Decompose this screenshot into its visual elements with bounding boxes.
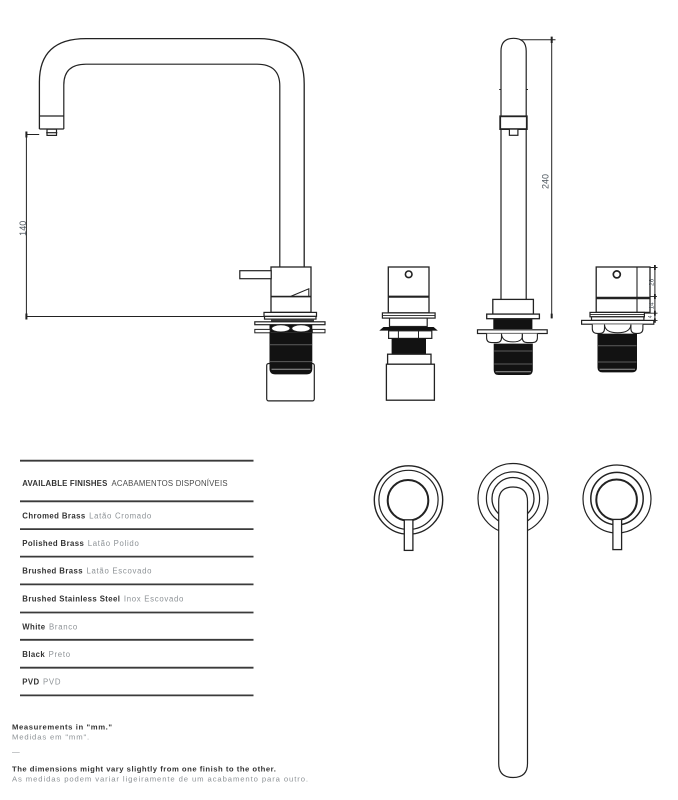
- svg-text:Measurements in "mm.": Measurements in "mm.": [12, 723, 113, 732]
- svg-text:BlackPreto: BlackPreto: [22, 650, 70, 659]
- svg-text:—: —: [12, 747, 20, 756]
- svg-text:Brushed BrassLatão Escovado: Brushed BrassLatão Escovado: [22, 567, 152, 576]
- svg-text:Polished BrassLatão Polido: Polished BrassLatão Polido: [22, 539, 139, 548]
- svg-text:Medidas em "mm".: Medidas em "mm".: [12, 733, 90, 742]
- svg-text:4: 4: [648, 315, 654, 318]
- svg-text:As medidas podem variar ligeir: As medidas podem variar ligeiramente de …: [12, 775, 309, 784]
- svg-text:PVDPVD: PVDPVD: [22, 678, 61, 687]
- svg-text:26: 26: [648, 278, 655, 286]
- svg-text:14: 14: [648, 302, 655, 310]
- svg-text:140: 140: [18, 221, 28, 236]
- svg-text:AVAILABLE FINISHESACABAMENTOS: AVAILABLE FINISHESACABAMENTOS DISPONÍVEI…: [22, 479, 227, 488]
- svg-text:WhiteBranco: WhiteBranco: [22, 623, 78, 632]
- svg-text:The dimensions might vary slig: The dimensions might vary slightly from …: [12, 765, 276, 774]
- svg-text:240: 240: [541, 174, 551, 189]
- svg-text:Chromed BrassLatão Cromado: Chromed BrassLatão Cromado: [22, 512, 152, 521]
- svg-text:Brushed Stainless SteelInox Es: Brushed Stainless SteelInox Escovado: [22, 595, 184, 604]
